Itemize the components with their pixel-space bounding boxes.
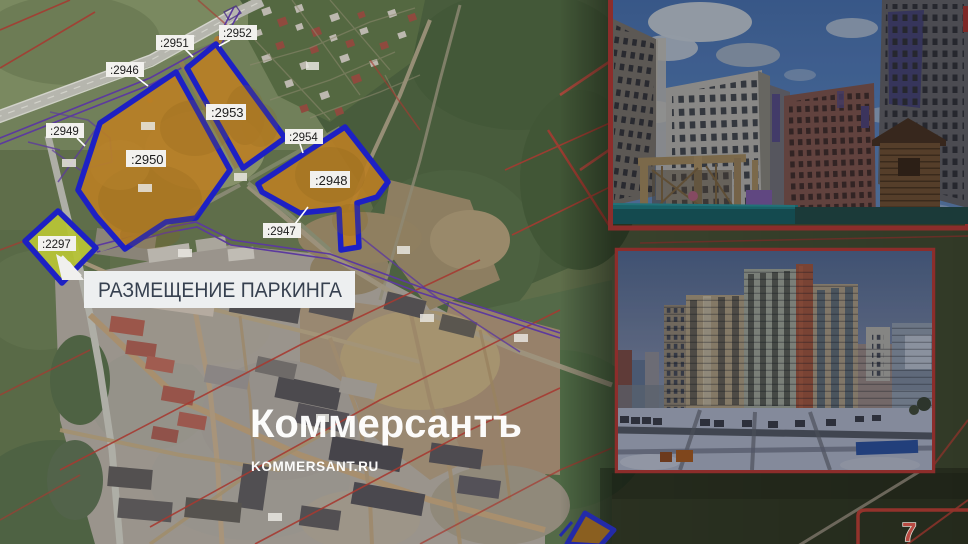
svg-text::2947: :2947 <box>267 226 296 238</box>
svg-text::2952: :2952 <box>223 28 252 40</box>
svg-text:РАЗМЕЩЕНИЕ ПАРКИНГА: РАЗМЕЩЕНИЕ ПАРКИНГА <box>98 279 342 302</box>
svg-text::2950: :2950 <box>131 152 164 167</box>
svg-text:7: 7 <box>902 517 916 544</box>
svg-text::2948: :2948 <box>315 173 348 188</box>
svg-text::2951: :2951 <box>160 38 189 50</box>
svg-text:KOMMERSANT.RU: KOMMERSANT.RU <box>251 459 379 474</box>
svg-text::2946: :2946 <box>110 65 139 77</box>
svg-text::2297: :2297 <box>42 239 71 251</box>
svg-text::2949: :2949 <box>50 126 79 138</box>
svg-text:Коммерсантъ: Коммерсантъ <box>250 402 522 446</box>
svg-text::2953: :2953 <box>211 105 244 120</box>
svg-text::2954: :2954 <box>289 132 318 144</box>
